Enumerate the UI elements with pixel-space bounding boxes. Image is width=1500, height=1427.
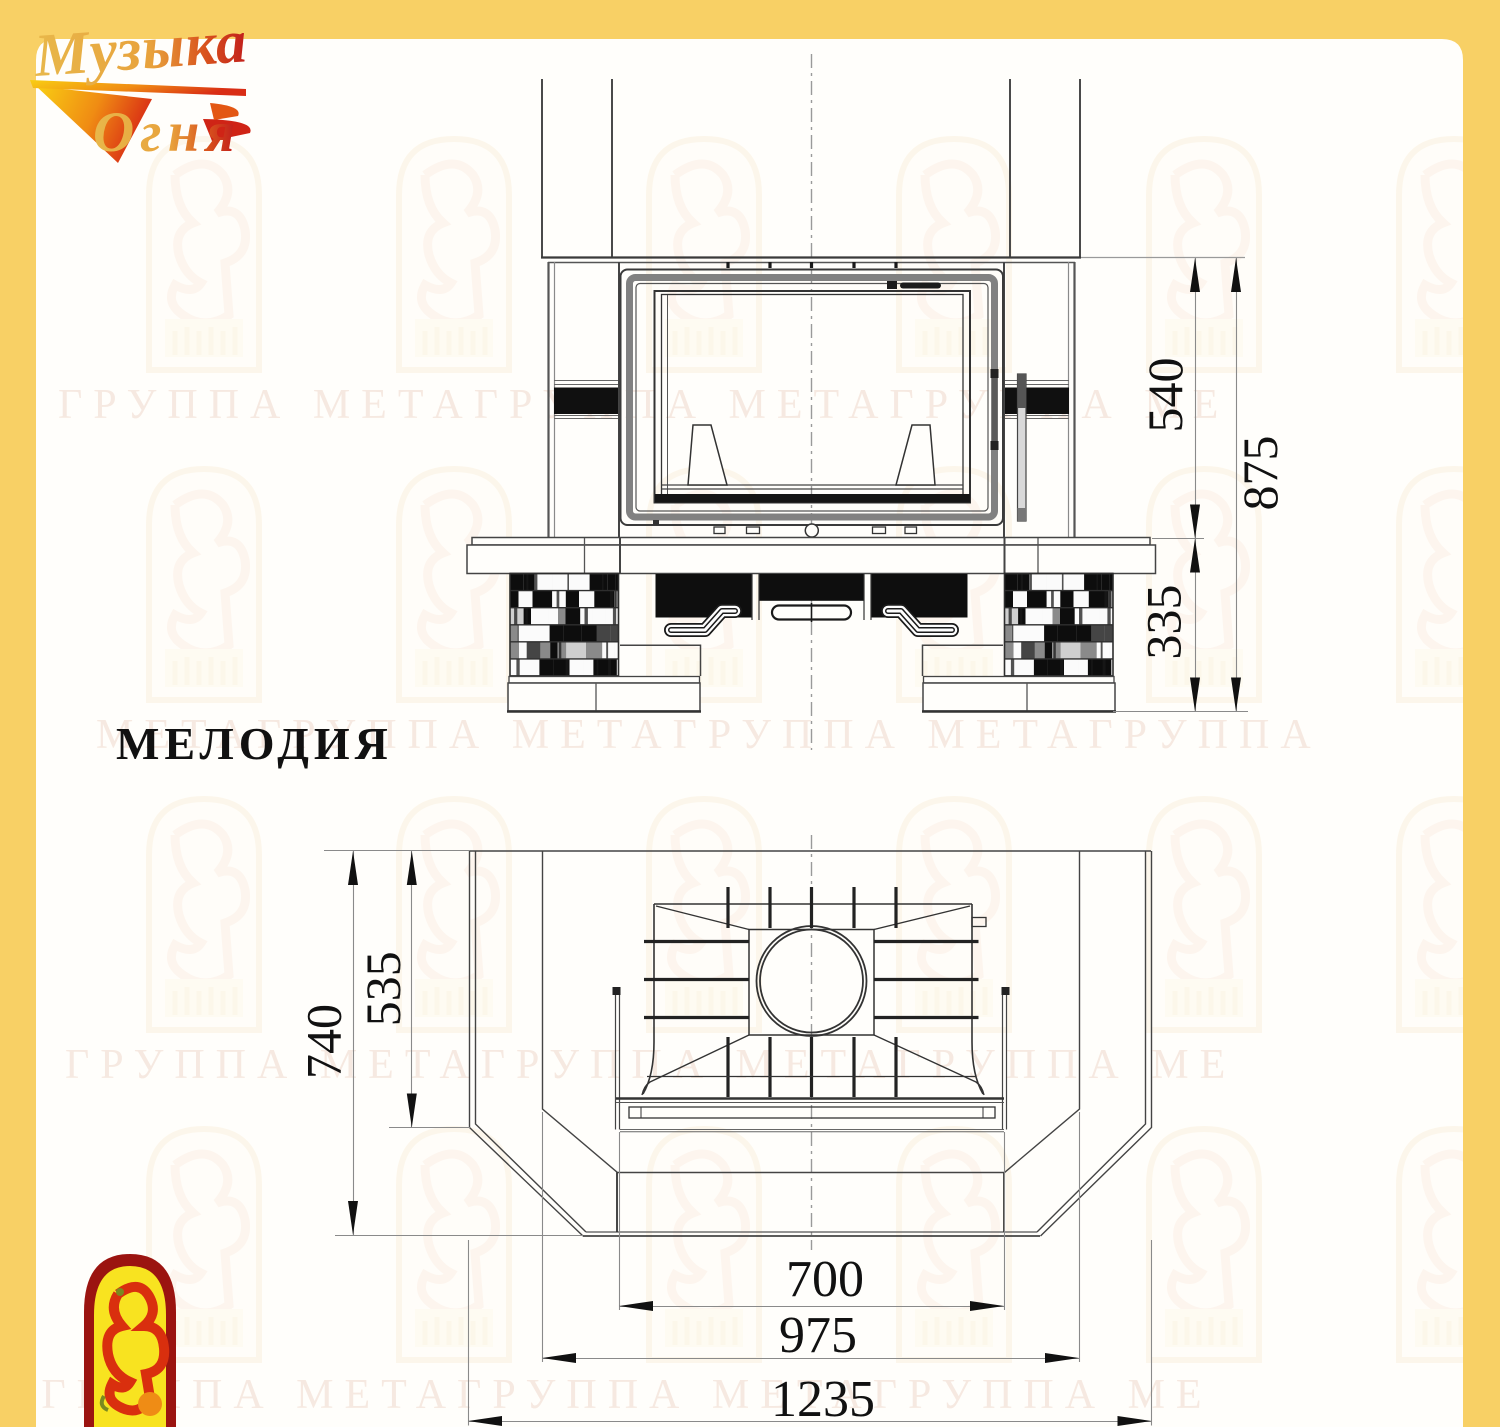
svg-text:МЕЛОДИЯ: МЕЛОДИЯ [116,718,393,769]
svg-text:540: 540 [1137,358,1193,433]
svg-text:700: 700 [786,1251,864,1308]
svg-text:740: 740 [296,1004,352,1079]
svg-text:535: 535 [355,951,411,1026]
svg-text:975: 975 [779,1307,857,1364]
svg-text:335: 335 [1136,585,1192,660]
svg-text:1235: 1235 [771,1371,875,1427]
svg-text:АГРУППА МЕТАГРУППА МЕТАГРУППА: АГРУППА МЕТАГРУППА МЕТАГРУППА МЕ [0,1372,1213,1418]
svg-text:875: 875 [1232,436,1288,511]
